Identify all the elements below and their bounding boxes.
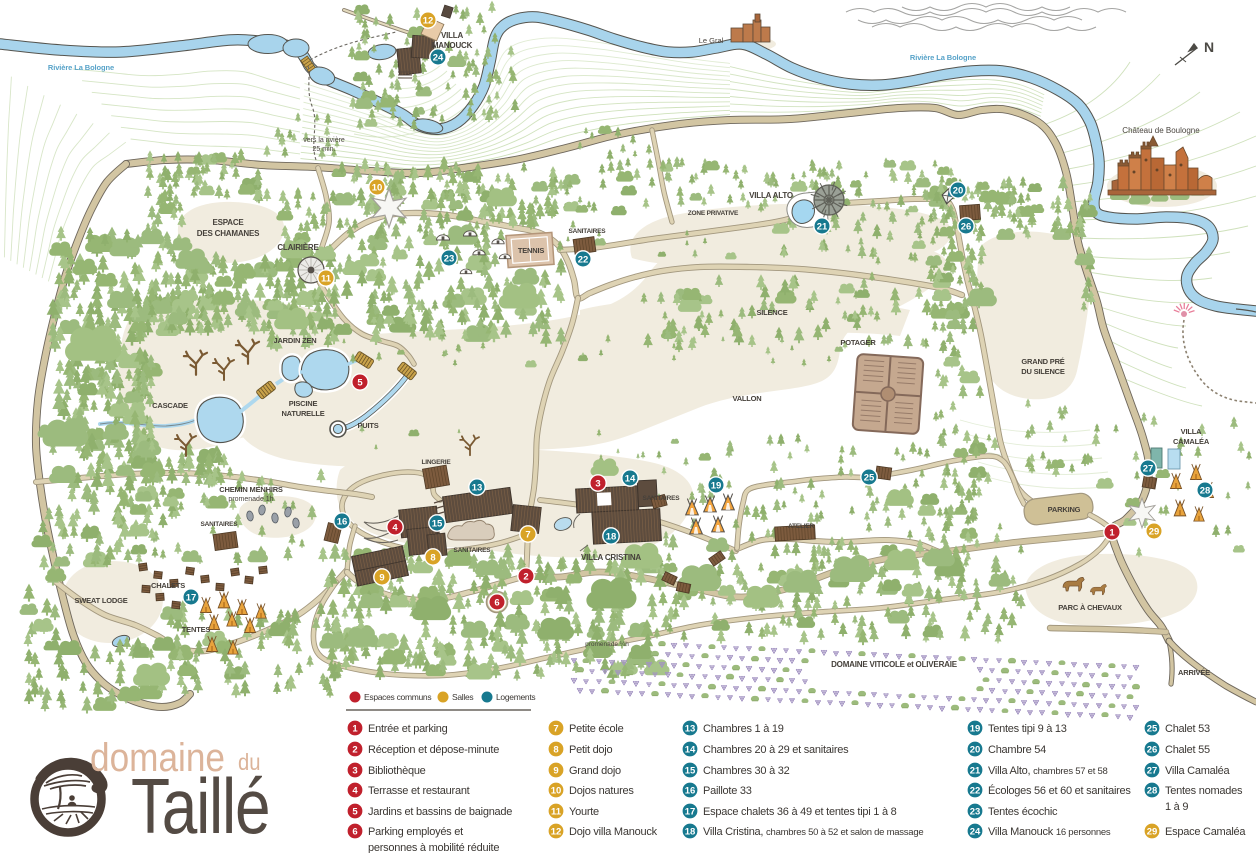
- svg-text:21: 21: [817, 221, 828, 232]
- svg-text:VALLON: VALLON: [732, 394, 761, 403]
- svg-text:PARC À CHEVAUX: PARC À CHEVAUX: [1058, 603, 1122, 612]
- svg-text:20: 20: [953, 185, 964, 196]
- svg-text:11: 11: [321, 273, 332, 284]
- svg-text:Taillé: Taillé: [131, 763, 269, 850]
- svg-text:POTAGER: POTAGER: [840, 338, 876, 347]
- svg-text:9: 9: [553, 765, 558, 776]
- svg-text:DOMAINE VITICOLE et OLIVERAIE: DOMAINE VITICOLE et OLIVERAIE: [831, 660, 958, 669]
- svg-text:Écologes 56 et 60 et sanitaire: Écologes 56 et 60 et sanitaires: [988, 784, 1131, 797]
- svg-text:14: 14: [625, 473, 636, 484]
- svg-text:24: 24: [433, 52, 444, 63]
- svg-text:Réception et dépose-minute: Réception et dépose-minute: [368, 744, 499, 756]
- svg-text:25: 25: [1147, 723, 1158, 734]
- svg-text:8: 8: [553, 744, 558, 755]
- svg-text:1: 1: [352, 723, 358, 734]
- svg-text:Espace chalets 36 à 49 et tent: Espace chalets 36 à 49 et tentes tipi 1 …: [703, 806, 897, 818]
- svg-text:PISCINE: PISCINE: [289, 399, 318, 408]
- svg-text:ZONE PRIVATIVE: ZONE PRIVATIVE: [688, 210, 739, 217]
- svg-text:13: 13: [685, 723, 696, 734]
- svg-text:GRAND PRÉ: GRAND PRÉ: [1021, 357, 1064, 366]
- svg-text:Chambres 30 à 32: Chambres 30 à 32: [703, 765, 790, 777]
- svg-text:12: 12: [551, 826, 562, 837]
- svg-text:25 min.: 25 min.: [313, 146, 336, 153]
- svg-text:21: 21: [970, 765, 981, 776]
- svg-text:Dojo villa Manouck: Dojo villa Manouck: [569, 826, 658, 838]
- svg-text:Villa Camaléa: Villa Camaléa: [1165, 765, 1231, 777]
- svg-text:18: 18: [685, 826, 696, 837]
- svg-text:Tentes tipi 9 à 13: Tentes tipi 9 à 13: [988, 723, 1067, 735]
- svg-text:Salles: Salles: [452, 692, 473, 702]
- svg-text:CAMALÉA: CAMALÉA: [1173, 437, 1210, 446]
- svg-text:1 à 9: 1 à 9: [1165, 801, 1188, 813]
- svg-text:2: 2: [352, 744, 357, 755]
- svg-text:Petit dojo: Petit dojo: [569, 744, 612, 756]
- svg-text:2: 2: [523, 571, 528, 582]
- svg-text:Terrasse et restaurant: Terrasse et restaurant: [368, 785, 470, 797]
- svg-text:27: 27: [1147, 765, 1158, 776]
- svg-text:29: 29: [1149, 526, 1160, 537]
- svg-text:23: 23: [444, 253, 455, 264]
- svg-text:1: 1: [1109, 527, 1115, 538]
- svg-text:26: 26: [1147, 744, 1158, 755]
- svg-text:17: 17: [186, 592, 197, 603]
- svg-text:27: 27: [1143, 463, 1154, 474]
- svg-text:Chambres 20 à 29 et sanitaires: Chambres 20 à 29 et sanitaires: [703, 744, 849, 756]
- svg-text:3: 3: [352, 765, 357, 776]
- svg-text:DU SILENCE: DU SILENCE: [1021, 367, 1065, 376]
- svg-text:Espaces communs: Espaces communs: [364, 692, 431, 702]
- svg-text:VILLA: VILLA: [1181, 427, 1202, 436]
- svg-text:Chalet 53: Chalet 53: [1165, 723, 1210, 735]
- svg-text:Chalet 55: Chalet 55: [1165, 744, 1210, 756]
- svg-text:SILENCE: SILENCE: [756, 308, 787, 317]
- svg-text:vers la rivière: vers la rivière: [303, 137, 345, 144]
- svg-text:22: 22: [578, 254, 589, 265]
- svg-text:Villa Cristina, chambres 50 à: Villa Cristina, chambres 50 à 52 et salo…: [703, 826, 923, 838]
- svg-text:6: 6: [352, 826, 357, 837]
- svg-text:14: 14: [685, 744, 696, 755]
- svg-text:Yourte: Yourte: [569, 806, 599, 818]
- svg-text:SWEAT LODGE: SWEAT LODGE: [74, 596, 127, 605]
- svg-text:28: 28: [1200, 485, 1211, 496]
- svg-text:promenade ¼h: promenade ¼h: [585, 641, 629, 648]
- svg-text:DES CHAMANES: DES CHAMANES: [197, 229, 260, 238]
- svg-text:VILLA CRISTINA: VILLA CRISTINA: [581, 553, 641, 562]
- svg-text:Petite école: Petite école: [569, 723, 624, 735]
- svg-text:Chambre 54: Chambre 54: [988, 744, 1046, 756]
- svg-text:PARKING: PARKING: [1048, 505, 1081, 514]
- svg-text:10: 10: [372, 182, 383, 193]
- svg-text:Rivière La Bologne: Rivière La Bologne: [910, 53, 976, 62]
- svg-text:SANITAIRES: SANITAIRES: [643, 495, 681, 502]
- svg-text:9: 9: [379, 572, 384, 583]
- svg-text:CLAIRIÈRE: CLAIRIÈRE: [277, 243, 319, 252]
- svg-text:Paillote 33: Paillote 33: [703, 785, 752, 797]
- svg-text:Bibliothèque: Bibliothèque: [368, 765, 426, 777]
- svg-text:7: 7: [553, 723, 558, 734]
- svg-text:JARDIN ZEN: JARDIN ZEN: [273, 336, 316, 345]
- svg-text:23: 23: [970, 806, 981, 817]
- svg-text:16: 16: [685, 785, 696, 796]
- svg-text:6: 6: [494, 597, 499, 608]
- svg-text:NATURELLE: NATURELLE: [281, 409, 324, 418]
- svg-text:11: 11: [551, 806, 562, 817]
- svg-text:ATELIER: ATELIER: [788, 523, 814, 530]
- svg-text:PUITS: PUITS: [357, 421, 378, 430]
- svg-text:promenade 1h: promenade 1h: [228, 496, 273, 503]
- svg-text:8: 8: [430, 552, 435, 563]
- svg-text:Jardins et bassins de baignade: Jardins et bassins de baignade: [368, 806, 512, 818]
- svg-text:4: 4: [392, 522, 398, 533]
- svg-text:ARRIVÉE: ARRIVÉE: [1178, 668, 1210, 677]
- svg-text:SANITAIRES: SANITAIRES: [201, 521, 239, 528]
- svg-text:Dojos natures: Dojos natures: [569, 785, 634, 797]
- svg-text:Parking employés et: Parking employés et: [368, 826, 463, 838]
- svg-text:Entrée et parking: Entrée et parking: [368, 723, 448, 735]
- svg-text:CASCADE: CASCADE: [152, 401, 188, 410]
- svg-text:Chambres 1 à 19: Chambres 1 à 19: [703, 723, 784, 735]
- svg-text:Grand dojo: Grand dojo: [569, 765, 621, 777]
- svg-text:25: 25: [864, 472, 875, 483]
- svg-text:LINGERIE: LINGERIE: [421, 459, 451, 466]
- svg-text:15: 15: [685, 765, 696, 776]
- svg-text:N: N: [1204, 39, 1214, 55]
- svg-text:19: 19: [711, 480, 722, 491]
- svg-text:24: 24: [970, 826, 981, 837]
- svg-text:5: 5: [357, 377, 363, 388]
- svg-text:SANITAIRES: SANITAIRES: [569, 228, 607, 235]
- svg-text:CHEMIN MENHIRS: CHEMIN MENHIRS: [219, 485, 283, 494]
- svg-text:19: 19: [970, 723, 981, 734]
- svg-text:CHALETS: CHALETS: [151, 581, 185, 590]
- svg-text:TENTES: TENTES: [182, 625, 211, 634]
- svg-text:Tentes écochic: Tentes écochic: [988, 806, 1058, 818]
- svg-text:VILLA ALTO: VILLA ALTO: [749, 191, 793, 200]
- svg-text:5: 5: [352, 806, 358, 817]
- svg-text:Villa Manouck 16 personnes: Villa Manouck 16 personnes: [988, 826, 1111, 838]
- svg-text:Logements: Logements: [496, 692, 535, 702]
- svg-text:Tentes nomades: Tentes nomades: [1165, 785, 1243, 797]
- svg-text:17: 17: [685, 806, 696, 817]
- svg-text:29: 29: [1147, 826, 1158, 837]
- svg-text:SANITAIRES: SANITAIRES: [454, 547, 492, 554]
- svg-text:15: 15: [432, 518, 443, 529]
- svg-text:18: 18: [606, 531, 617, 542]
- svg-text:Espace Camaléa: Espace Camaléa: [1165, 826, 1246, 838]
- svg-text:Château de Boulogne: Château de Boulogne: [1122, 126, 1200, 135]
- svg-text:ESPACE: ESPACE: [212, 218, 244, 227]
- svg-text:TENNIS: TENNIS: [518, 246, 545, 255]
- svg-text:Rivière La Bologne: Rivière La Bologne: [48, 63, 114, 72]
- svg-text:13: 13: [472, 482, 483, 493]
- svg-text:12: 12: [423, 15, 434, 26]
- svg-text:16: 16: [337, 516, 348, 527]
- svg-text:26: 26: [961, 221, 972, 232]
- svg-text:4: 4: [352, 785, 358, 796]
- svg-text:Le Gral: Le Gral: [699, 36, 724, 45]
- svg-text:VILLA: VILLA: [441, 31, 464, 40]
- svg-text:28: 28: [1147, 785, 1158, 796]
- svg-text:22: 22: [970, 785, 981, 796]
- svg-text:10: 10: [551, 785, 562, 796]
- svg-text:personnes à mobilité réduite: personnes à mobilité réduite: [368, 842, 499, 853]
- svg-text:7: 7: [525, 529, 530, 540]
- svg-text:3: 3: [595, 478, 600, 489]
- svg-text:20: 20: [970, 744, 981, 755]
- svg-text:Villa Alto, chambres 57 et 58: Villa Alto, chambres 57 et 58: [988, 765, 1108, 777]
